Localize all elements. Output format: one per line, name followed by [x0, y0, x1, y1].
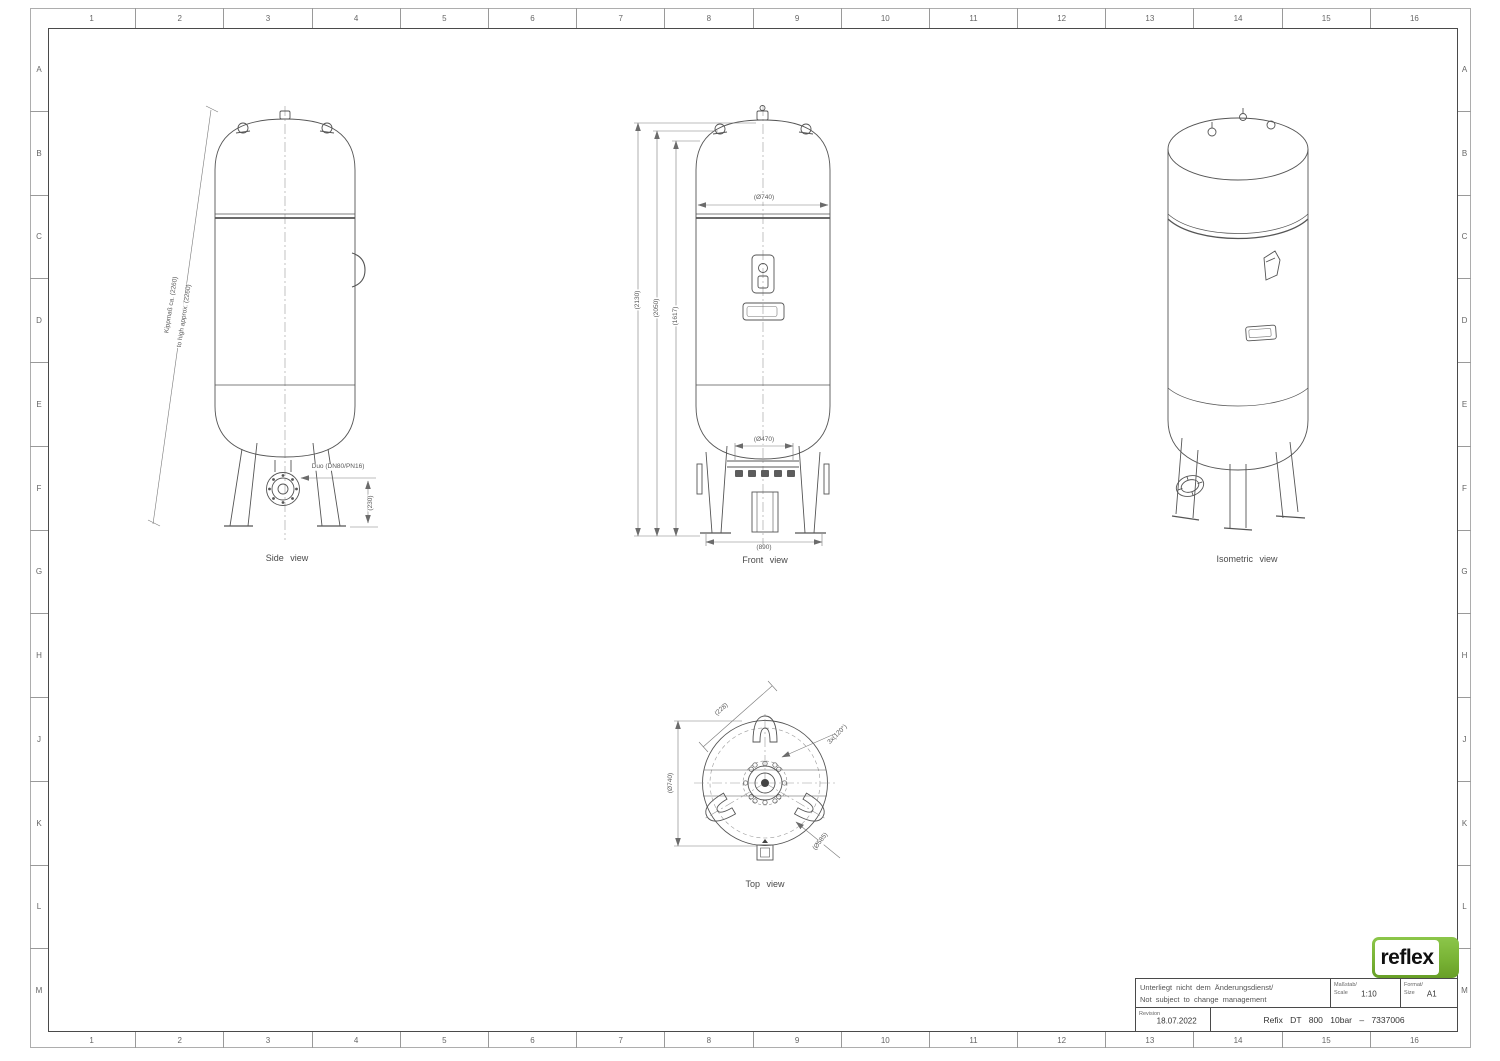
title-block-row-1: Unterliegt nicht dem Änderungsdienst/ No… [1136, 979, 1457, 1008]
top-view-label: Top view [745, 879, 784, 889]
isometric-view-label: Isometric view [1216, 554, 1277, 564]
top-pipe-stub [757, 839, 773, 860]
isometric-view-drawing [1168, 108, 1308, 530]
front-view-drawing [634, 106, 830, 547]
side-view-label: Side view [266, 553, 309, 563]
drawing-title: Refix DT 800 10bar – 7337006 [1211, 1008, 1457, 1031]
revision-cell: Revision 18.07.2022 [1136, 1008, 1211, 1031]
title-block: Unterliegt nicht dem Änderungsdienst/ No… [1135, 978, 1458, 1032]
side-duo-flange [267, 460, 300, 506]
format-value: A1 [1427, 990, 1437, 999]
change-management-note: Unterliegt nicht dem Änderungsdienst/ No… [1136, 979, 1331, 1007]
iso-legs [1172, 438, 1305, 530]
side-handle [352, 253, 365, 287]
front-nameplate [743, 303, 784, 320]
side-dim-connection: Duo (DN80/PN16) [311, 464, 366, 471]
front-dim-leg-span: (890) [755, 545, 772, 552]
iso-bracket [1264, 251, 1280, 280]
reflex-logo-panel: reflex [1375, 940, 1439, 975]
vessel-drawing [0, 0, 1500, 1061]
front-dim-diameter: (Ø740) [753, 195, 775, 202]
note-line-de: Unterliegt nicht dem Änderungsdienst/ [1140, 982, 1326, 994]
top-dimensions [674, 681, 848, 858]
iso-nameplate [1246, 325, 1277, 341]
format-label: Format/ Size [1404, 981, 1423, 998]
scale-value: 1:10 [1361, 990, 1377, 999]
scale-label: Maßstab/ Scale [1334, 981, 1357, 998]
front-dim-height-2: (2050) [654, 298, 661, 319]
front-view-label: Front view [742, 555, 788, 565]
revision-value: 18.07.2022 [1157, 1016, 1197, 1025]
title-block-row-2: Revision 18.07.2022 Refix DT 800 10bar –… [1136, 1008, 1457, 1031]
front-dimensions [634, 123, 828, 546]
iso-top-fittings [1208, 108, 1275, 136]
format-cell: Format/ Size A1 [1401, 979, 1457, 1007]
note-line-en: Not subject to change management [1140, 994, 1326, 1006]
front-dim-height-3: (1617) [673, 306, 680, 327]
reflex-logo-text: reflex [1380, 946, 1433, 970]
front-dim-support-circle: (Ø470) [753, 437, 775, 444]
top-dim-diameter: (Ø740) [668, 772, 675, 794]
reflex-logo: reflex [1372, 937, 1459, 978]
scale-cell: Maßstab/ Scale 1:10 [1331, 979, 1401, 1007]
drawing-sheet: 12345678910111213141516 1234567891011121… [0, 0, 1500, 1061]
front-dim-total-height: (2130) [635, 290, 642, 311]
side-dim-flange-height: (230) [368, 494, 375, 511]
